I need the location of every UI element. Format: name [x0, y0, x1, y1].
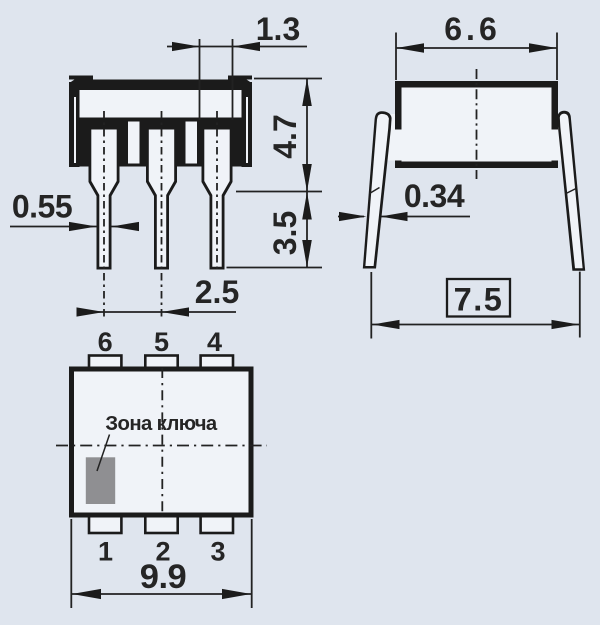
svg-text:0.34: 0.34	[404, 178, 465, 214]
svg-text:4.7: 4.7	[267, 114, 303, 158]
svg-text:3.5: 3.5	[267, 211, 303, 255]
svg-text:6: 6	[98, 327, 113, 357]
svg-text:3: 3	[210, 537, 225, 567]
svg-text:7.5: 7.5	[454, 282, 504, 318]
svg-text:2.5: 2.5	[195, 274, 239, 310]
svg-text:6.6: 6.6	[444, 11, 500, 47]
svg-text:4: 4	[207, 327, 222, 357]
svg-text:5: 5	[154, 327, 169, 357]
svg-text:Зона ключа: Зона ключа	[105, 413, 217, 435]
svg-text:0.55: 0.55	[12, 189, 72, 225]
svg-text:9.9: 9.9	[140, 558, 186, 596]
svg-text:1: 1	[98, 537, 113, 567]
svg-text:1.3: 1.3	[256, 11, 300, 47]
